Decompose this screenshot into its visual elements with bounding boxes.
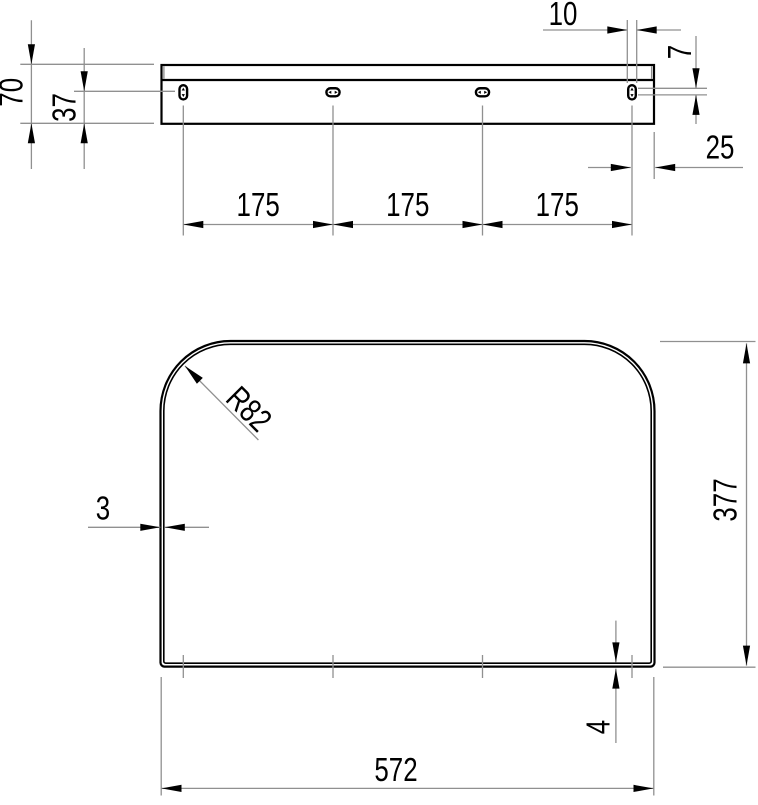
svg-text:37: 37 (45, 93, 82, 122)
svg-text:10: 10 (549, 0, 578, 32)
svg-text:7: 7 (661, 45, 698, 59)
svg-text:3: 3 (96, 489, 110, 526)
svg-text:4: 4 (579, 720, 616, 734)
svg-text:25: 25 (706, 128, 735, 165)
svg-text:70: 70 (0, 78, 29, 107)
svg-text:175: 175 (386, 186, 429, 223)
svg-text:175: 175 (237, 186, 280, 223)
svg-text:572: 572 (374, 751, 417, 788)
svg-text:377: 377 (706, 478, 743, 521)
svg-text:175: 175 (536, 186, 579, 223)
